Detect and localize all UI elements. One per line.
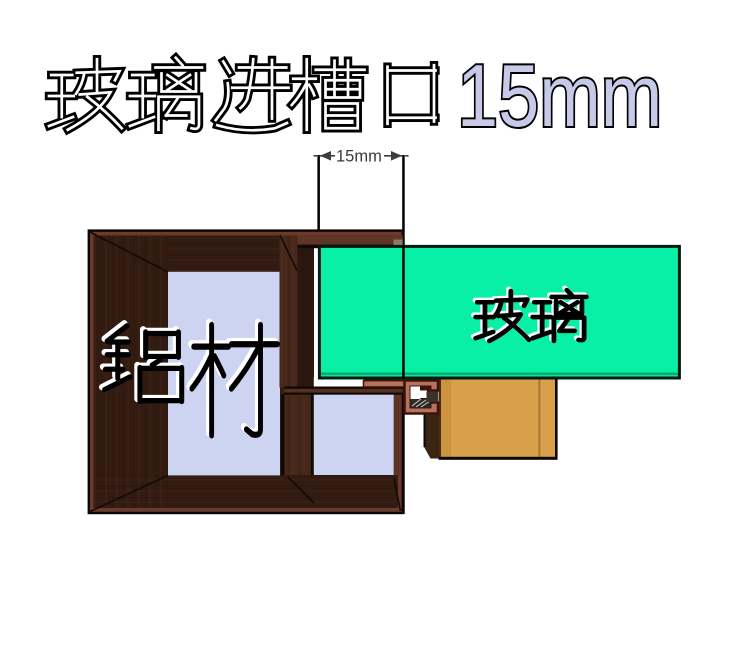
svg-text:15mm: 15mm [457, 47, 662, 146]
svg-text:15mm: 15mm [336, 148, 382, 166]
